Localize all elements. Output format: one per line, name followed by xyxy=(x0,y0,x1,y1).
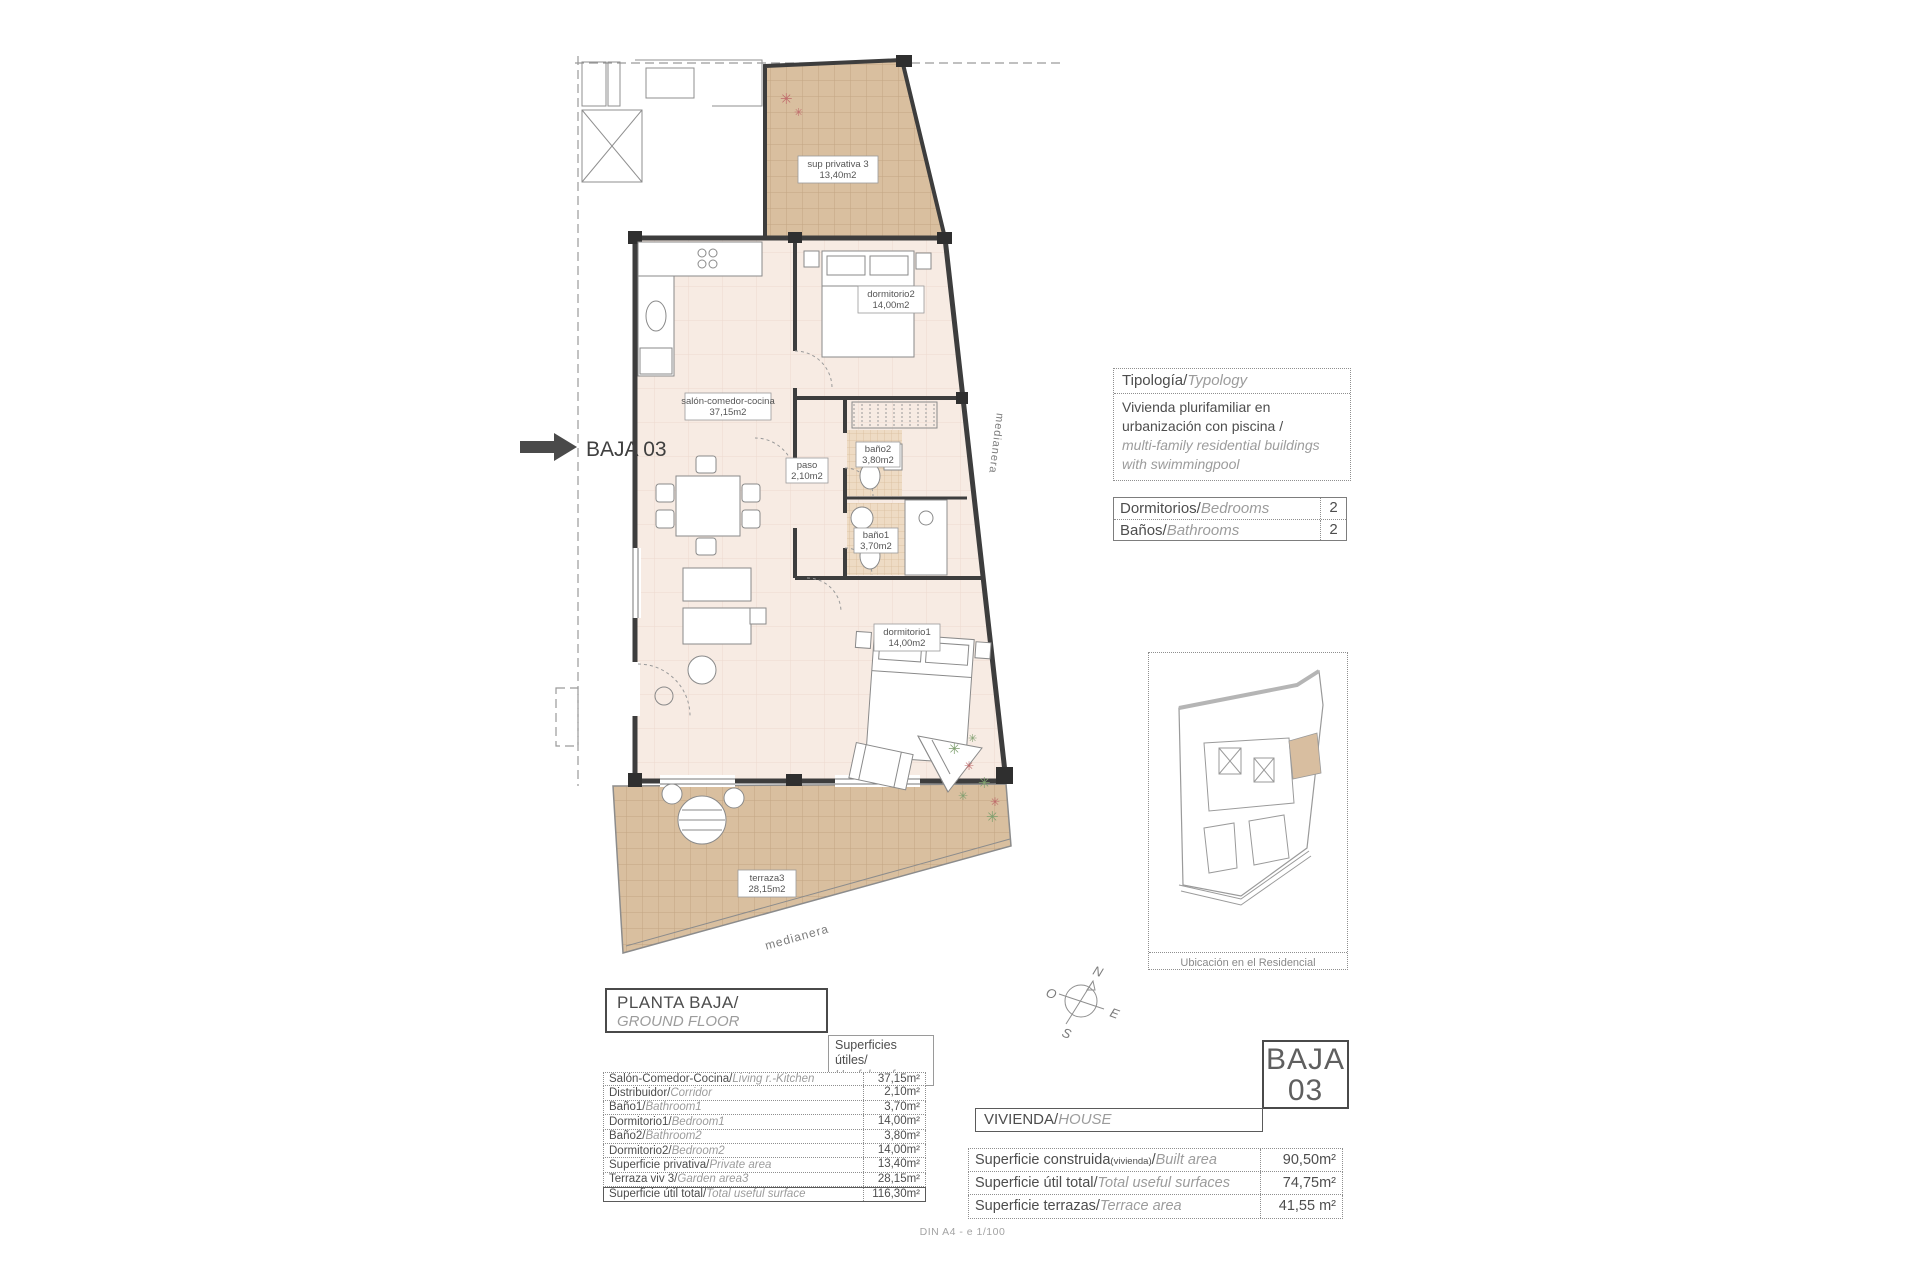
terrace-top xyxy=(765,60,945,238)
table-row: Dormitorios/Bedrooms 2 xyxy=(1114,498,1346,519)
svg-text:✳: ✳ xyxy=(986,809,999,826)
table-row: Superficie útil total/Total useful surfa… xyxy=(968,1172,1343,1196)
unit-number-box: BAJA 03 xyxy=(1262,1040,1349,1109)
table-row: Baño1/Bathroom13,70m² xyxy=(603,1101,926,1115)
unit-marker: BAJA 03 xyxy=(520,433,667,461)
compass-rose: N O E S xyxy=(1035,952,1130,1047)
minimap-highlight-unit xyxy=(1289,733,1321,779)
svg-text:14,00m2: 14,00m2 xyxy=(889,638,926,649)
minimap-drawing xyxy=(1149,653,1347,952)
compass-e: E xyxy=(1108,1005,1122,1022)
room-label-dormitorio1: dormitorio1 xyxy=(883,627,931,638)
svg-text:✳: ✳ xyxy=(968,733,977,745)
location-minimap: Ubicación en el Residencial xyxy=(1148,652,1348,970)
room-label-dormitorio2: dormitorio2 xyxy=(867,289,915,300)
svg-text:37,15m2: 37,15m2 xyxy=(710,407,747,418)
svg-text:3,70m2: 3,70m2 xyxy=(860,541,892,552)
table-row: Superficie construida(vivienda)/Built ar… xyxy=(968,1148,1343,1172)
room-label-terraza3: terraza3 xyxy=(750,873,785,884)
table-row: Dormitorio1/Bedroom114,00m² xyxy=(603,1115,926,1129)
svg-text:✳: ✳ xyxy=(948,741,961,758)
svg-text:28,15m2: 28,15m2 xyxy=(749,884,786,895)
svg-text:✳: ✳ xyxy=(990,795,1000,809)
vivienda-header-bar: VIVIENDA/HOUSE xyxy=(975,1108,1263,1132)
table-row-total: Superficie útil total/Total useful surfa… xyxy=(603,1187,926,1201)
floor-plan-drawing: ✳ ✳ ✳ ✳ ✳ ✳ ✳ ✳ ✳ sup privativa 3 13,40m… xyxy=(450,48,1075,983)
typology-body: Vivienda plurifamiliar en urbanización c… xyxy=(1114,394,1350,480)
table-row: Dormitorio2/Bedroom214,00m² xyxy=(603,1144,926,1158)
floor-title-es: PLANTA BAJA/ xyxy=(617,993,816,1013)
table-row: Baño2/Bathroom23,80m² xyxy=(603,1130,926,1144)
minimap-svg xyxy=(1149,653,1347,947)
areas-summary-table: Superficie construida(vivienda)/Built ar… xyxy=(968,1148,1343,1219)
table-row: Superficie privativa/Private area13,40m² xyxy=(603,1158,926,1172)
svg-text:3,80m2: 3,80m2 xyxy=(862,455,894,466)
typology-box: Tipología/Typology Vivienda plurifamilia… xyxy=(1113,368,1351,481)
compass-o: O xyxy=(1044,985,1059,1003)
table-row: Salón-Comedor-Cocina/Living r.-Kitchen37… xyxy=(603,1072,926,1086)
rooms-count-table: Dormitorios/Bedrooms 2 Baños/Bathrooms 2 xyxy=(1113,497,1347,541)
room-label-bano2: baño2 xyxy=(865,444,891,455)
svg-text:2,10m2: 2,10m2 xyxy=(791,471,823,482)
table-row: Terraza viv 3/Garden area328,15m² xyxy=(603,1173,926,1187)
svg-text:✳: ✳ xyxy=(794,107,803,119)
floor-title-box: PLANTA BAJA/ GROUND FLOOR xyxy=(605,988,828,1033)
room-label-salon: salón-comedor-cocina xyxy=(681,396,775,407)
common-core-outlines xyxy=(582,60,762,182)
compass-s: S xyxy=(1060,1025,1074,1042)
medianera-right-label: medianera xyxy=(986,412,1005,474)
svg-text:14,00m2: 14,00m2 xyxy=(873,300,910,311)
room-label-paso: paso xyxy=(797,460,818,471)
stair-hatch xyxy=(852,402,937,428)
arrow-icon xyxy=(520,433,577,461)
typology-title: Tipología/Typology xyxy=(1114,369,1350,394)
sheet-scale-footer: DIN A4 - e 1/100 xyxy=(860,1226,1065,1238)
medianera-bottom-label: medianera xyxy=(763,922,830,953)
unit-marker-label: BAJA 03 xyxy=(586,438,667,461)
minimap-caption: Ubicación en el Residencial xyxy=(1149,952,1347,974)
room-label-sup-privativa: sup privativa 3 xyxy=(807,159,868,170)
floorplan-sheet: ✳ ✳ ✳ ✳ ✳ ✳ ✳ ✳ ✳ sup privativa 3 13,40m… xyxy=(0,0,1920,1280)
svg-text:✳: ✳ xyxy=(978,775,991,792)
table-row: Distribuidor/Corridor2,10m² xyxy=(603,1086,926,1100)
useful-surfaces-table: Salón-Comedor-Cocina/Living r.-Kitchen37… xyxy=(603,1072,926,1202)
svg-text:✳: ✳ xyxy=(780,91,793,108)
svg-text:✳: ✳ xyxy=(964,759,974,773)
svg-text:13,40m2: 13,40m2 xyxy=(820,170,857,181)
compass-n: N xyxy=(1091,963,1106,981)
floor-title-en: GROUND FLOOR xyxy=(617,1013,816,1030)
svg-text:✳: ✳ xyxy=(958,789,968,803)
room-label-bano1: baño1 xyxy=(863,530,889,541)
table-row: Baños/Bathrooms 2 xyxy=(1114,519,1346,540)
table-row: Superficie terrazas/Terrace area 41,55 m… xyxy=(968,1195,1343,1219)
